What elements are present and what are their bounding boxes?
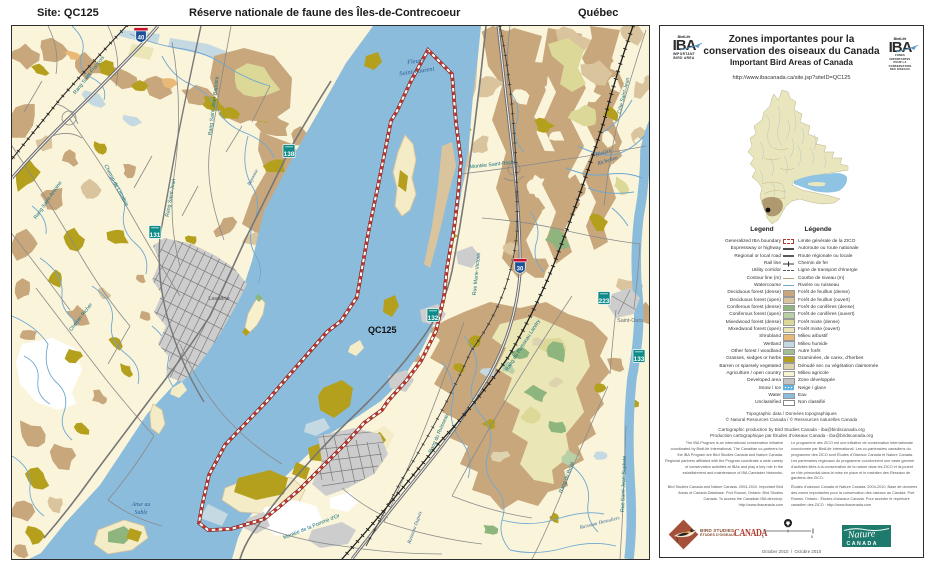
svg-text:Anse au: Anse au [131,502,151,508]
svg-text:5: 5 [811,535,813,539]
svg-text:km: km [786,525,791,529]
svg-text:Sable: Sable [135,510,148,516]
svg-text:133: 133 [634,356,645,363]
svg-text:CANADA: CANADA [847,541,878,547]
svg-text:0: 0 [762,535,764,539]
svg-text:40: 40 [138,36,145,42]
svg-text:138: 138 [284,151,295,158]
svg-text:131: 131 [150,232,161,239]
svg-text:Nature: Nature [847,529,877,542]
svg-text:Lavaltrie: Lavaltrie [208,296,229,302]
svg-text:30: 30 [517,267,524,273]
svg-text:132: 132 [428,315,439,322]
svg-text:QC125: QC125 [368,325,397,335]
svg-text:Saint-Ours: Saint-Ours [617,318,643,324]
svg-text:223: 223 [599,298,610,305]
